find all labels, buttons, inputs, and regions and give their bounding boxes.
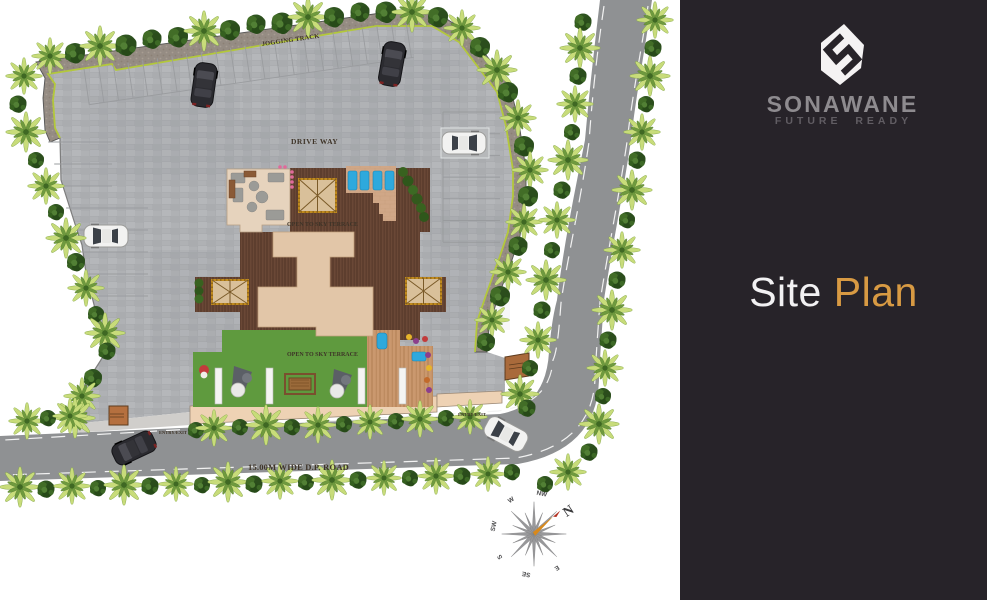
svg-text:E: E xyxy=(553,564,560,572)
svg-text:S: S xyxy=(496,553,504,560)
svg-text:OPEN TO SKY TERRACE: OPEN TO SKY TERRACE xyxy=(287,352,358,358)
svg-text:ENTRY/EXIT: ENTRY/EXIT xyxy=(458,412,486,417)
svg-text:NW: NW xyxy=(536,490,548,499)
svg-text:N: N xyxy=(560,502,577,520)
svg-text:OPEN TO SKY TERRACE: OPEN TO SKY TERRACE xyxy=(287,222,358,228)
svg-text:15.00M WIDE D.P. ROAD: 15.00M WIDE D.P. ROAD xyxy=(248,462,349,472)
svg-text:SW: SW xyxy=(490,521,499,532)
svg-text:ENTRY/EXIT: ENTRY/EXIT xyxy=(159,430,187,435)
svg-text:DRIVE WAY: DRIVE WAY xyxy=(291,137,338,146)
svg-text:W: W xyxy=(507,496,516,505)
svg-text:SE: SE xyxy=(521,570,531,578)
